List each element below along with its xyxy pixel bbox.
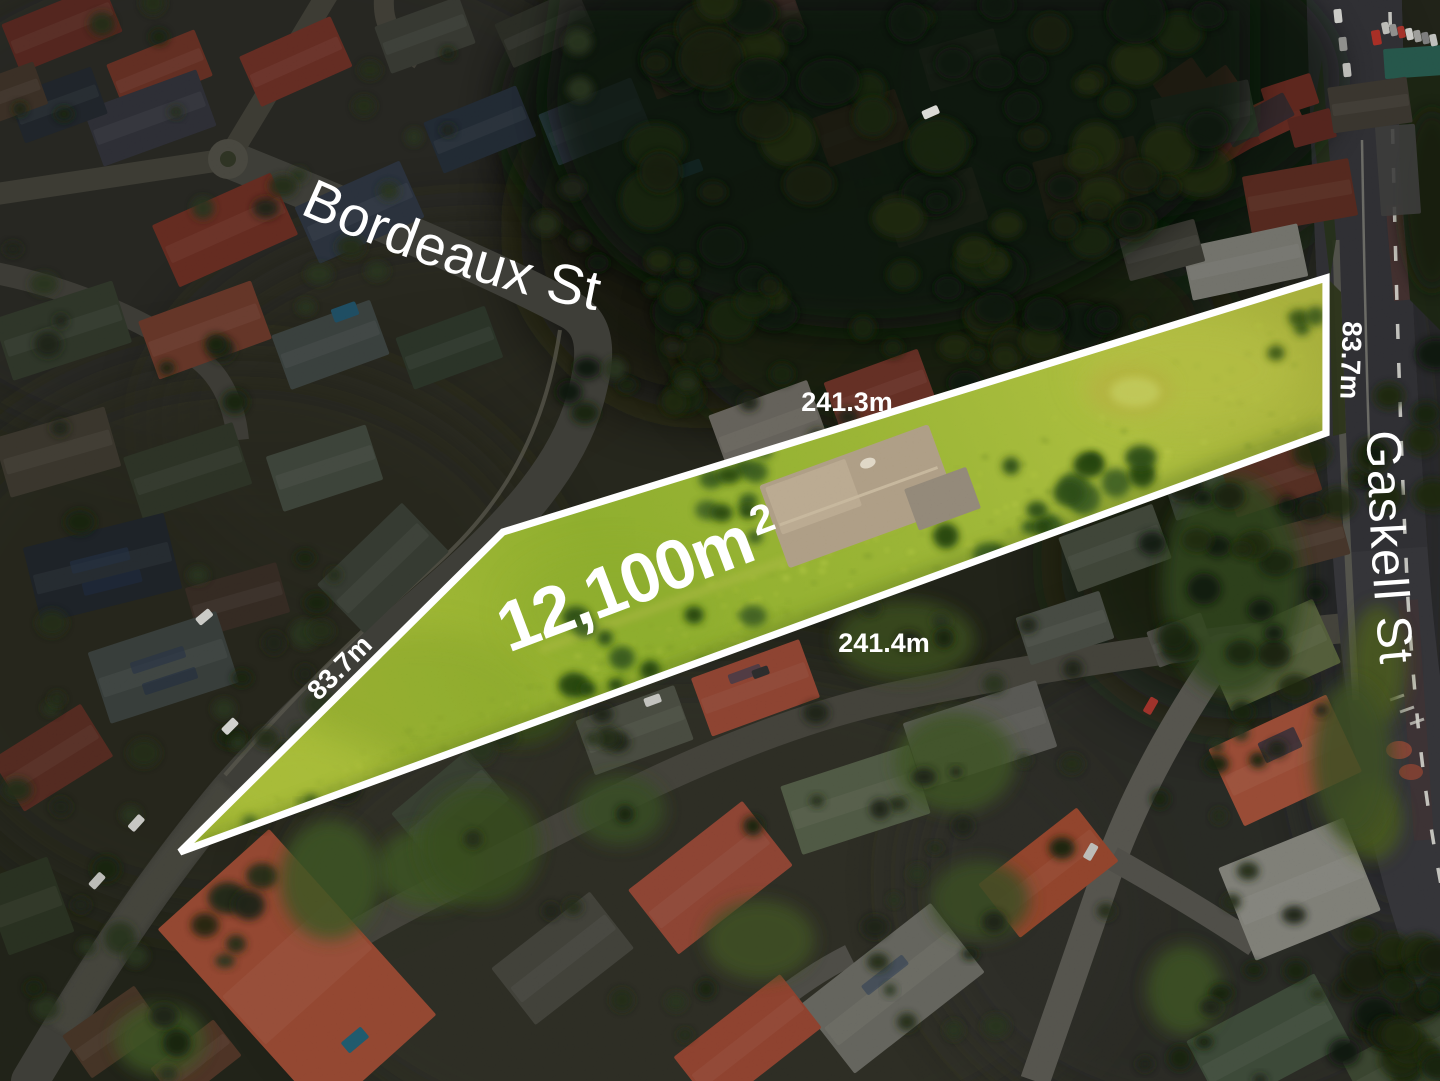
- svg-text:241.4m: 241.4m: [838, 628, 930, 658]
- svg-text:83.7m: 83.7m: [1334, 321, 1368, 400]
- svg-text:241.3m: 241.3m: [801, 387, 893, 417]
